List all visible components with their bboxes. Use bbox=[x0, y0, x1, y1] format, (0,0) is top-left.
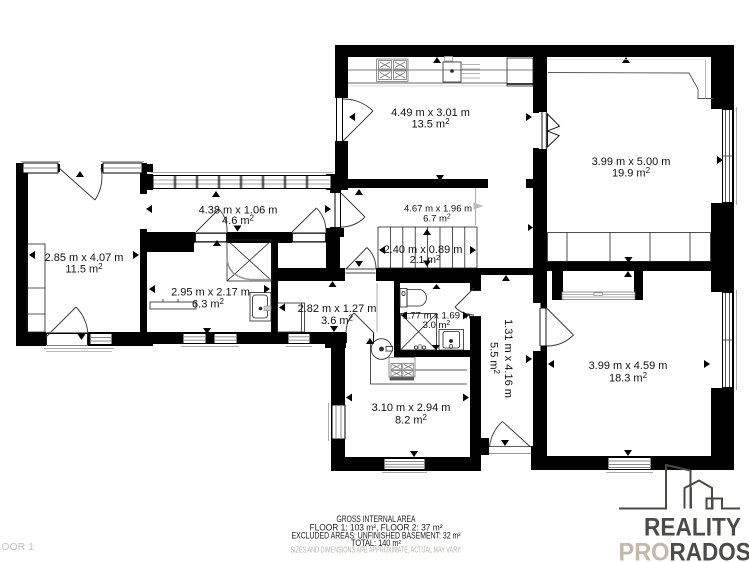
svg-text:3.99 m x 4.59 m: 3.99 m x 4.59 m bbox=[589, 360, 668, 372]
svg-text:4.49 m x 3.01 m: 4.49 m x 3.01 m bbox=[391, 107, 470, 119]
svg-text:18.3 m2: 18.3 m2 bbox=[609, 371, 648, 385]
svg-text:2.95 m x 2.17 m: 2.95 m x 2.17 m bbox=[171, 287, 250, 299]
svg-text:PRO: PRO bbox=[619, 539, 670, 562]
svg-text:13.5 m2: 13.5 m2 bbox=[411, 117, 450, 131]
svg-text:3.99 m x 5.00 m: 3.99 m x 5.00 m bbox=[592, 156, 671, 168]
svg-text:RADOST: RADOST bbox=[670, 539, 749, 562]
svg-text:3.0 m2: 3.0 m2 bbox=[423, 320, 451, 331]
svg-text:3.10 m x 2.94 m: 3.10 m x 2.94 m bbox=[372, 402, 451, 414]
svg-text:19.9 m2: 19.9 m2 bbox=[612, 166, 651, 180]
svg-text:11.5 m2: 11.5 m2 bbox=[65, 262, 103, 276]
svg-text:REALITY: REALITY bbox=[644, 514, 741, 542]
svg-text:2.85 m x 4.07 m: 2.85 m x 4.07 m bbox=[45, 252, 124, 264]
svg-text:SIZES AND DIMENSIONS ARE APPRO: SIZES AND DIMENSIONS ARE APPROXIMATE, AC… bbox=[291, 545, 462, 554]
svg-text:2.82 m x 1.27 m: 2.82 m x 1.27 m bbox=[298, 303, 377, 315]
svg-text:6.7 m2: 6.7 m2 bbox=[423, 214, 451, 225]
svg-text:1.31 m x 4.16 m: 1.31 m x 4.16 m bbox=[502, 319, 514, 398]
svg-text:2.1 m2: 2.1 m2 bbox=[410, 253, 440, 266]
svg-text:FLOOR 1: FLOOR 1 bbox=[0, 541, 34, 553]
